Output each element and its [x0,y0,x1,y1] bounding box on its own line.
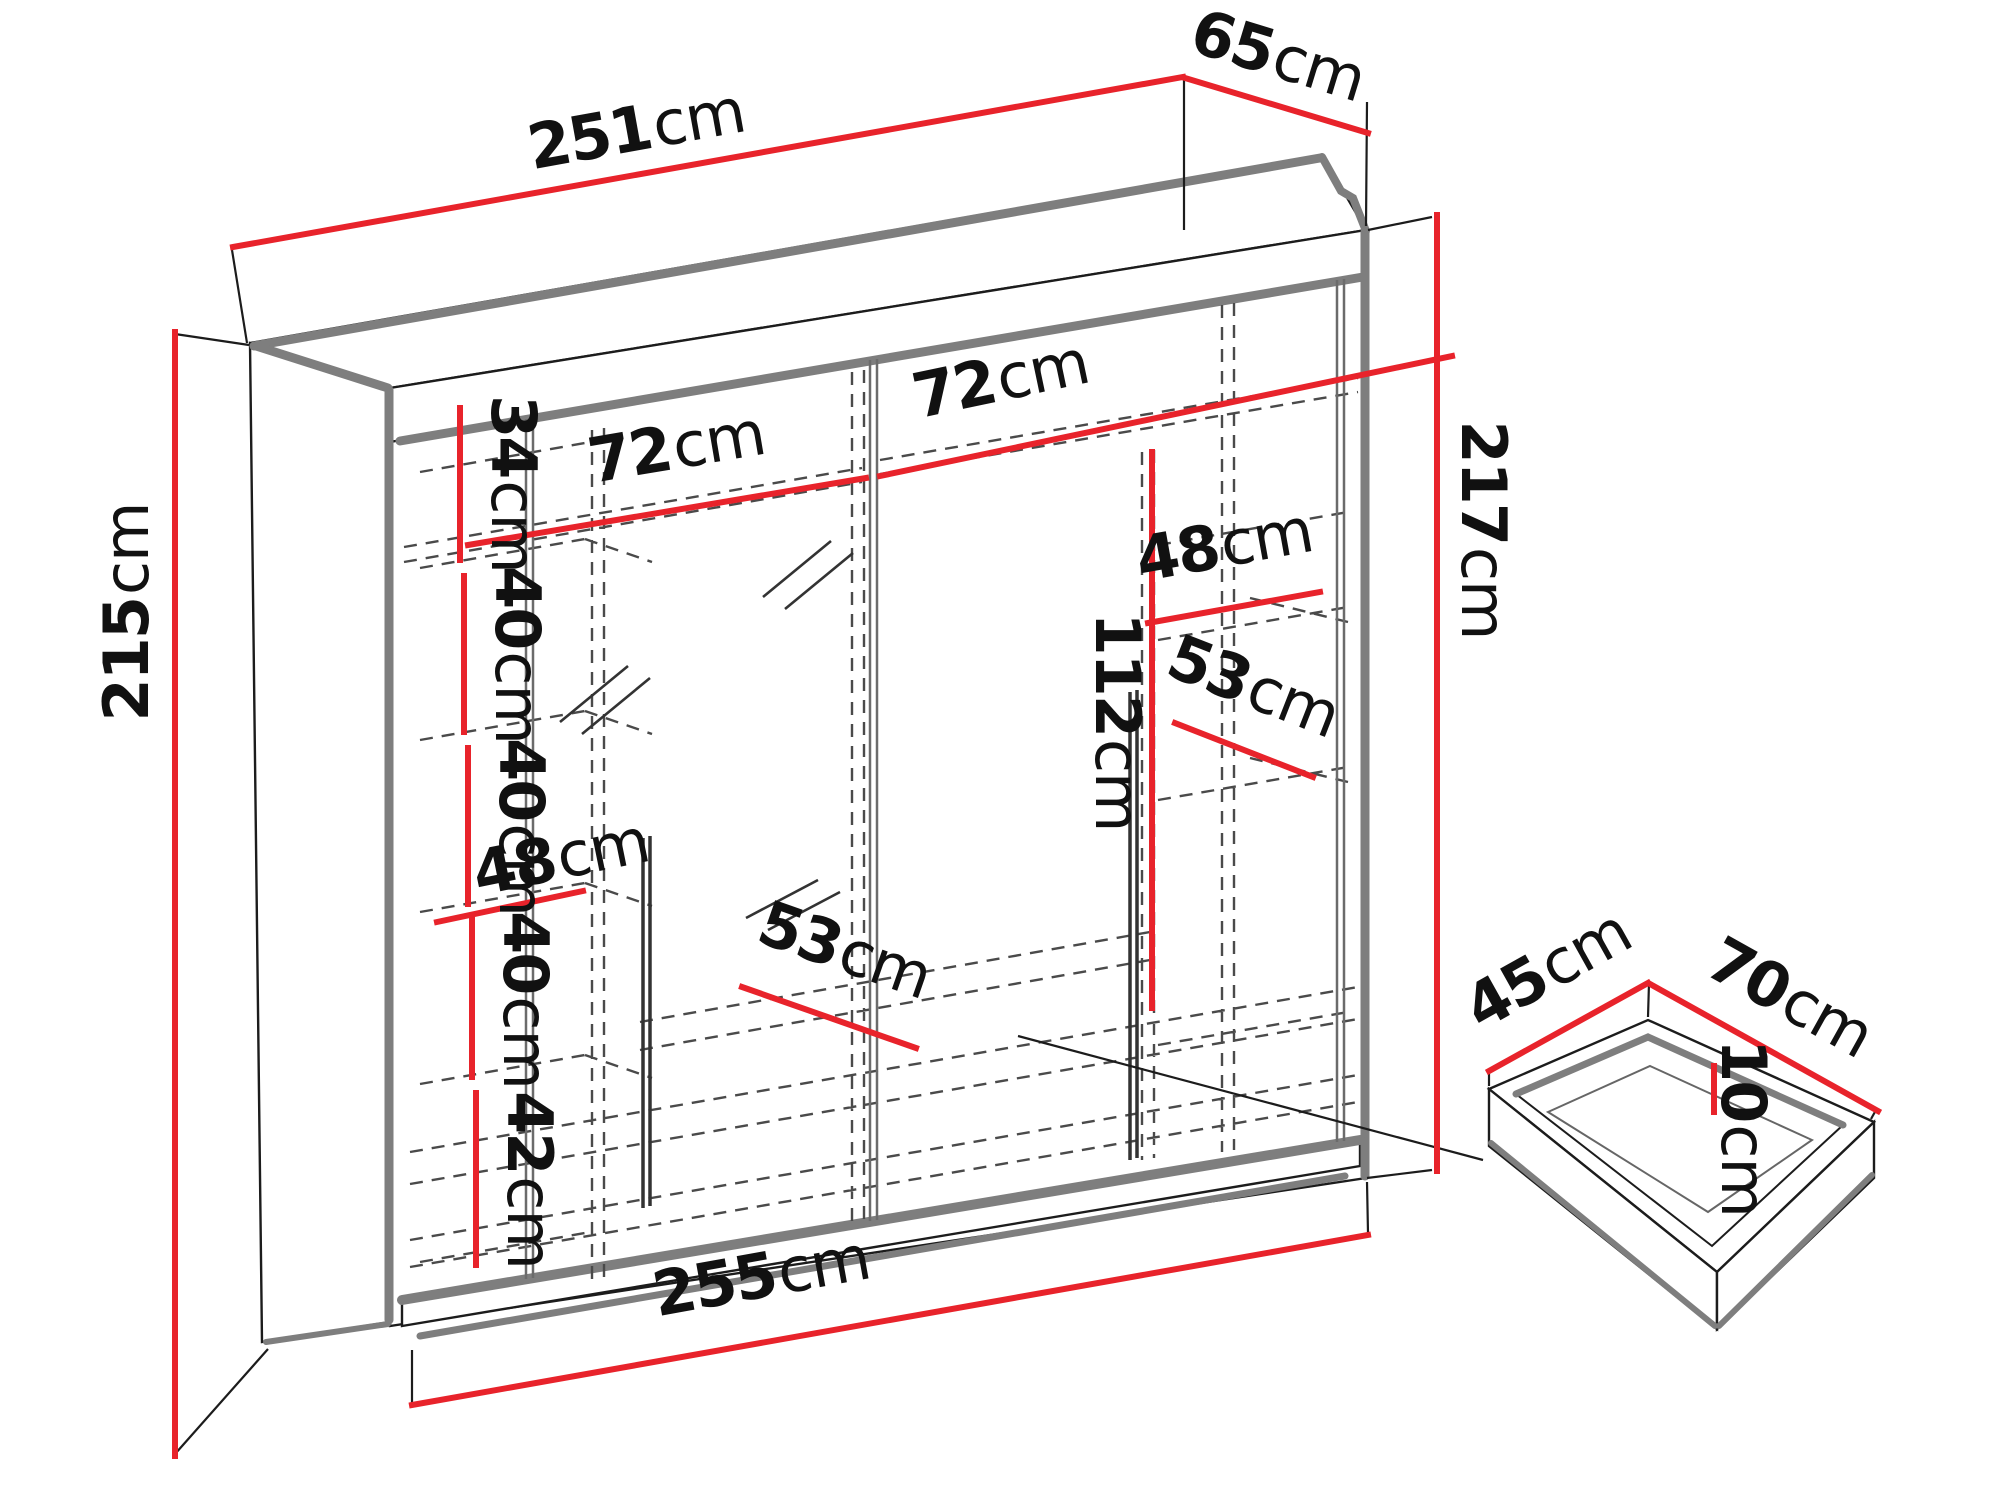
dim-label-section-40c: 40cm [489,911,562,1089]
dim-label-section-40a: 40cm [481,566,554,744]
dim-label-height-right: 217cm [1447,421,1520,640]
wardrobe-dimension-drawing: 251cm 65cm 215cm 217cm 255cm 34cm 40cm 4… [0,0,2000,1499]
drawer-detail [1489,1020,1874,1329]
dim-label-depth-top: 65cm [1183,0,1374,116]
dim-label-section-34: 34cm [477,395,550,573]
dim-label-drawer-10: 10cm [1707,1039,1780,1217]
diagram-canvas: 251cm 65cm 215cm 217cm 255cm 34cm 40cm 4… [0,0,2000,1499]
dim-label-section-42: 42cm [493,1091,566,1269]
dim-label-hanging-112: 112cm [1081,613,1154,832]
dim-label-drawer-45: 45cm [1452,894,1643,1044]
dim-label-width-top: 251cm [522,74,750,185]
dim-label-height-left: 215cm [90,503,163,722]
wardrobe-left-panel [250,343,390,1342]
